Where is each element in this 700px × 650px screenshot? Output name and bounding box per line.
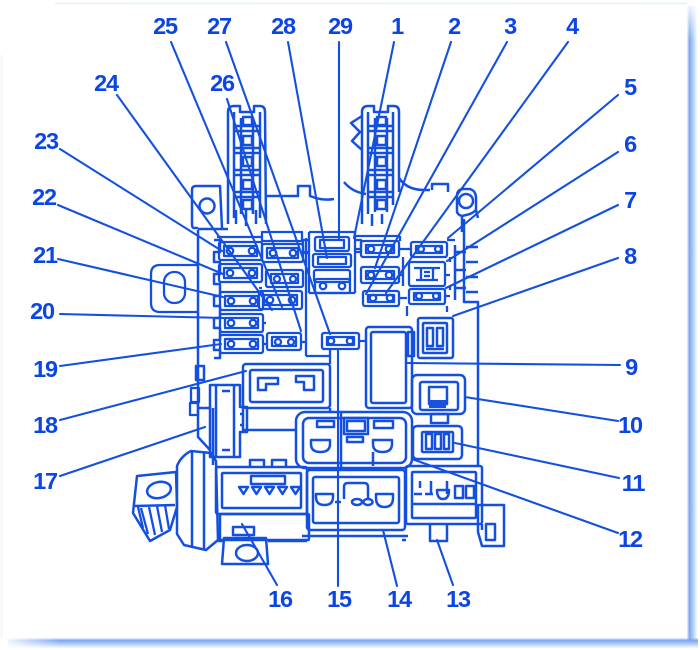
svg-text:5: 5 [624,74,637,100]
svg-text:29: 29 [328,13,353,39]
svg-text:25: 25 [153,13,178,39]
svg-text:15: 15 [327,586,352,612]
svg-text:21: 21 [33,242,58,268]
svg-text:22: 22 [32,184,57,210]
svg-text:12: 12 [618,526,643,552]
svg-text:7: 7 [624,187,637,213]
svg-text:8: 8 [624,243,637,269]
svg-text:13: 13 [446,586,471,612]
svg-text:24: 24 [94,70,119,96]
svg-text:26: 26 [210,70,235,96]
svg-text:6: 6 [624,131,637,157]
svg-text:2: 2 [448,13,461,39]
svg-text:18: 18 [33,412,58,438]
svg-text:17: 17 [33,468,58,494]
svg-text:10: 10 [618,412,643,438]
svg-text:1: 1 [391,13,404,39]
svg-text:20: 20 [30,298,55,324]
svg-text:4: 4 [566,13,579,39]
svg-text:9: 9 [625,354,638,380]
svg-text:3: 3 [504,13,517,39]
svg-text:14: 14 [387,586,412,612]
svg-text:23: 23 [34,128,59,154]
svg-text:28: 28 [271,13,296,39]
svg-text:27: 27 [207,13,232,39]
svg-text:11: 11 [622,470,646,496]
svg-text:16: 16 [268,586,293,612]
svg-text:19: 19 [33,356,58,382]
